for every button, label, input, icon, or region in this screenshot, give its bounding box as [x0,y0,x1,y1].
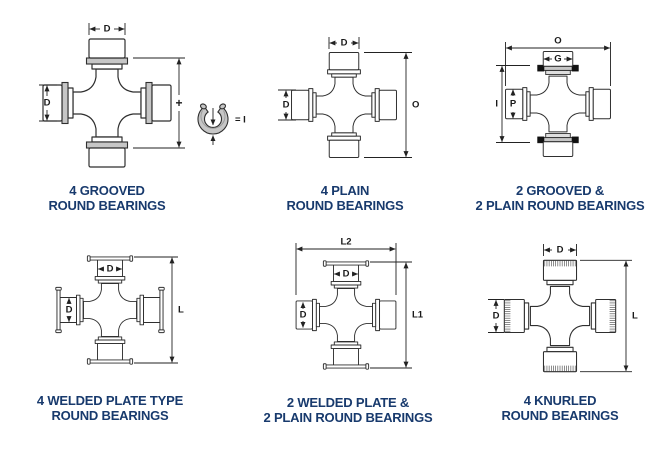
dim-label-right-l: L [178,305,184,316]
caption-line: 4 GROOVED [69,183,145,198]
dim-label-top-o: O [554,36,561,47]
dim-label-cap-left-d: D [300,310,307,321]
diagram-4-knurled-round-bearings: D D L [464,228,660,400]
snap-ring-figure: = I [198,103,246,145]
dim-label-plus: + [175,96,182,110]
diagram-2-grooved-2-plain-round-bearings: O G I P [462,8,658,178]
diagram-4-plain-round-bearings: D D O [252,10,430,178]
caption-line: 2 GROOVED & [516,183,604,198]
dim-label-left-d: D [44,98,51,109]
caption-line: 4 WELDED PLATE TYPE [37,393,183,408]
dim-label-top-d: D [104,24,111,35]
caption-line: ROUND BEARINGS [51,408,168,423]
cross-figure [292,53,397,158]
dim-label-cap-top-d: D [343,269,350,280]
bearing-types-diagram-sheet: D D + = I 4 GROOVED ROUND BEARINGS [0,0,670,450]
dim-label-top-l2: L2 [340,237,351,248]
dim-label-left-d: D [493,311,500,322]
dimension-left-d: D [488,300,504,333]
caption-line: ROUND BEARINGS [48,198,165,213]
dim-label-cap-top-d: D [107,264,114,275]
dimension-top-d: D [89,23,125,35]
caption-4-knurled: 4 KNURLED ROUND BEARINGS [430,393,670,423]
diagram-2-welded-plate-2-plain-round-bearings: L2 D D L1 [252,228,438,400]
dim-label-ring-equals-i: = I [235,115,246,126]
dim-label-left-i: I [495,99,498,110]
caption-2-grooved-2-plain: 2 GROOVED & 2 PLAIN ROUND BEARINGS [430,183,670,213]
dim-label-cap-left-d: D [66,305,73,316]
cross-figure [506,52,611,157]
caption-line: 2 PLAIN ROUND BEARINGS [264,410,433,425]
caption-line: 2 WELDED PLATE & [287,395,409,410]
dimension-top-d: D [544,244,577,256]
dim-label-cap-p: P [510,99,517,110]
caption-line: ROUND BEARINGS [501,408,618,423]
caption-line: 4 KNURLED [524,393,597,408]
dim-label-top-d: D [557,245,564,256]
dim-label-right-l: L [632,311,638,322]
caption-line: ROUND BEARINGS [286,198,403,213]
caption-line: 4 PLAIN [321,183,369,198]
dim-label-top-d: D [341,38,348,49]
diagram-4-grooved-round-bearings: D D + = I [0,8,258,180]
diagram-4-welded-plate-type-round-bearings: D D L [16,226,204,392]
dimension-top-d: D [329,37,359,49]
caption-line: 2 PLAIN ROUND BEARINGS [476,198,645,213]
caption-4-grooved: 4 GROOVED ROUND BEARINGS [0,183,237,213]
dim-label-right-o: O [412,100,419,111]
dim-label-left-d: D [283,100,290,111]
dim-label-cap-g: G [554,54,561,65]
cross-figure [504,260,615,371]
dim-label-right-l1: L1 [412,310,424,321]
caption-4-welded-plate: 4 WELDED PLATE TYPE ROUND BEARINGS [0,393,240,423]
